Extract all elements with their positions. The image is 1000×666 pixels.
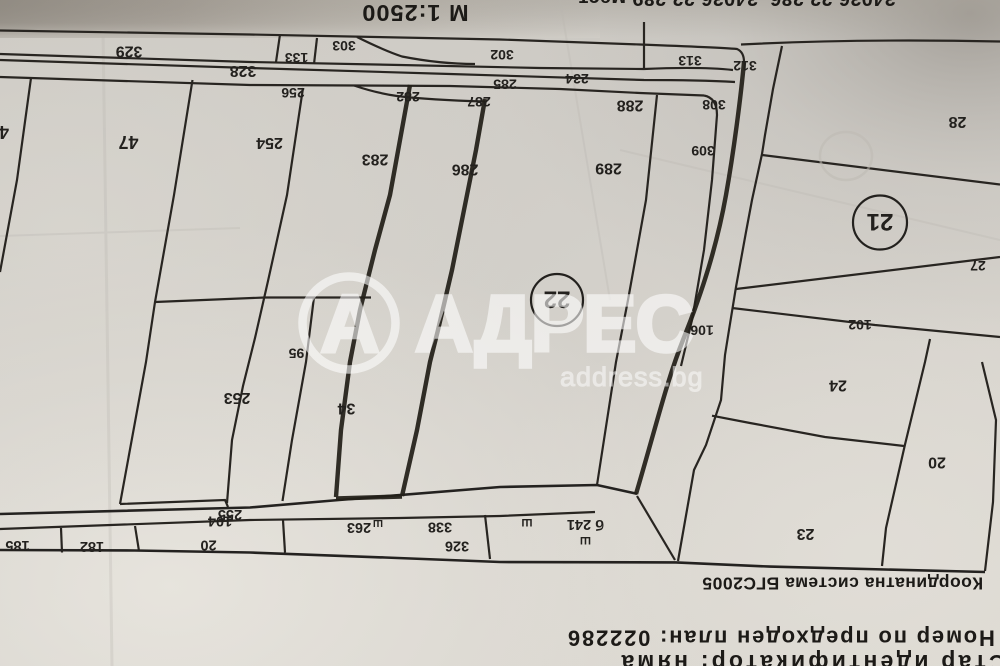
svg-text:Ш: Ш	[580, 534, 591, 546]
svg-text:329: 329	[116, 43, 143, 60]
svg-text:95: 95	[289, 346, 305, 362]
svg-text:288: 288	[617, 97, 644, 114]
svg-text:34: 34	[338, 400, 356, 417]
svg-text:47: 47	[118, 132, 138, 152]
svg-text:20: 20	[200, 537, 216, 553]
svg-text:289: 289	[595, 160, 622, 177]
svg-text:312: 312	[733, 58, 757, 74]
svg-text:28: 28	[949, 113, 967, 130]
svg-text:287: 287	[467, 94, 491, 110]
svg-text:263: 263	[347, 519, 371, 535]
svg-text:104: 104	[208, 513, 232, 529]
svg-text:М 1:2500: М 1:2500	[361, 0, 468, 26]
svg-text:address.bg: address.bg	[560, 362, 704, 392]
svg-text:27: 27	[970, 258, 986, 274]
svg-text:285: 285	[493, 77, 517, 93]
svg-text:20: 20	[928, 454, 946, 471]
svg-text:АДРЕС: АДРЕС	[415, 279, 692, 368]
svg-text:309: 309	[691, 143, 715, 159]
svg-text:326: 326	[445, 538, 469, 554]
svg-text:286: 286	[452, 161, 479, 178]
svg-text:302: 302	[490, 47, 514, 63]
svg-text:133: 133	[285, 50, 309, 66]
svg-text:Стар идентификатор: няма: Стар идентификатор: няма	[618, 650, 1000, 666]
svg-text:102: 102	[848, 317, 872, 333]
svg-text:185: 185	[5, 537, 29, 553]
svg-text:328: 328	[230, 62, 257, 79]
svg-text:256: 256	[281, 85, 305, 101]
svg-text:308: 308	[702, 97, 726, 113]
svg-text:303: 303	[332, 38, 356, 54]
svg-text:4: 4	[0, 122, 9, 142]
svg-text:282: 282	[396, 89, 420, 105]
svg-text:б 241: б 241	[567, 516, 604, 532]
svg-text:106: 106	[690, 323, 714, 339]
svg-text:338: 338	[428, 519, 452, 535]
svg-text:Ш: Ш	[373, 517, 383, 528]
svg-text:283: 283	[362, 151, 389, 168]
svg-text:24: 24	[829, 377, 847, 394]
svg-text:34036.22.286, 34036.22.289 мес: 34036.22.286, 34036.22.289 мест	[578, 0, 895, 9]
svg-text:21: 21	[867, 208, 894, 235]
svg-text:182: 182	[80, 538, 104, 554]
svg-text:Координатна система БГС2005: Координатна система БГС2005	[702, 574, 983, 594]
svg-text:Ш: Ш	[521, 516, 532, 528]
svg-text:А: А	[320, 279, 379, 370]
svg-text:253: 253	[224, 389, 251, 406]
svg-text:254: 254	[256, 134, 283, 151]
svg-text:313: 313	[678, 53, 702, 69]
svg-text:Номер по предходен план: 02228: Номер по предходен план: 022286	[566, 626, 995, 651]
svg-text:23: 23	[797, 525, 815, 542]
svg-text:234: 234	[565, 71, 589, 87]
